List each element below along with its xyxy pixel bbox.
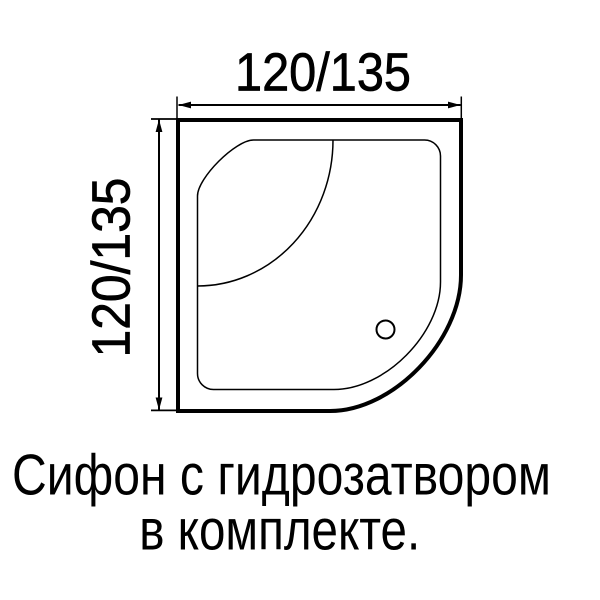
svg-text:120/135: 120/135 (235, 44, 411, 103)
svg-text:120/135: 120/135 (83, 178, 142, 358)
svg-text:в комплекте.: в комплекте. (139, 499, 420, 563)
